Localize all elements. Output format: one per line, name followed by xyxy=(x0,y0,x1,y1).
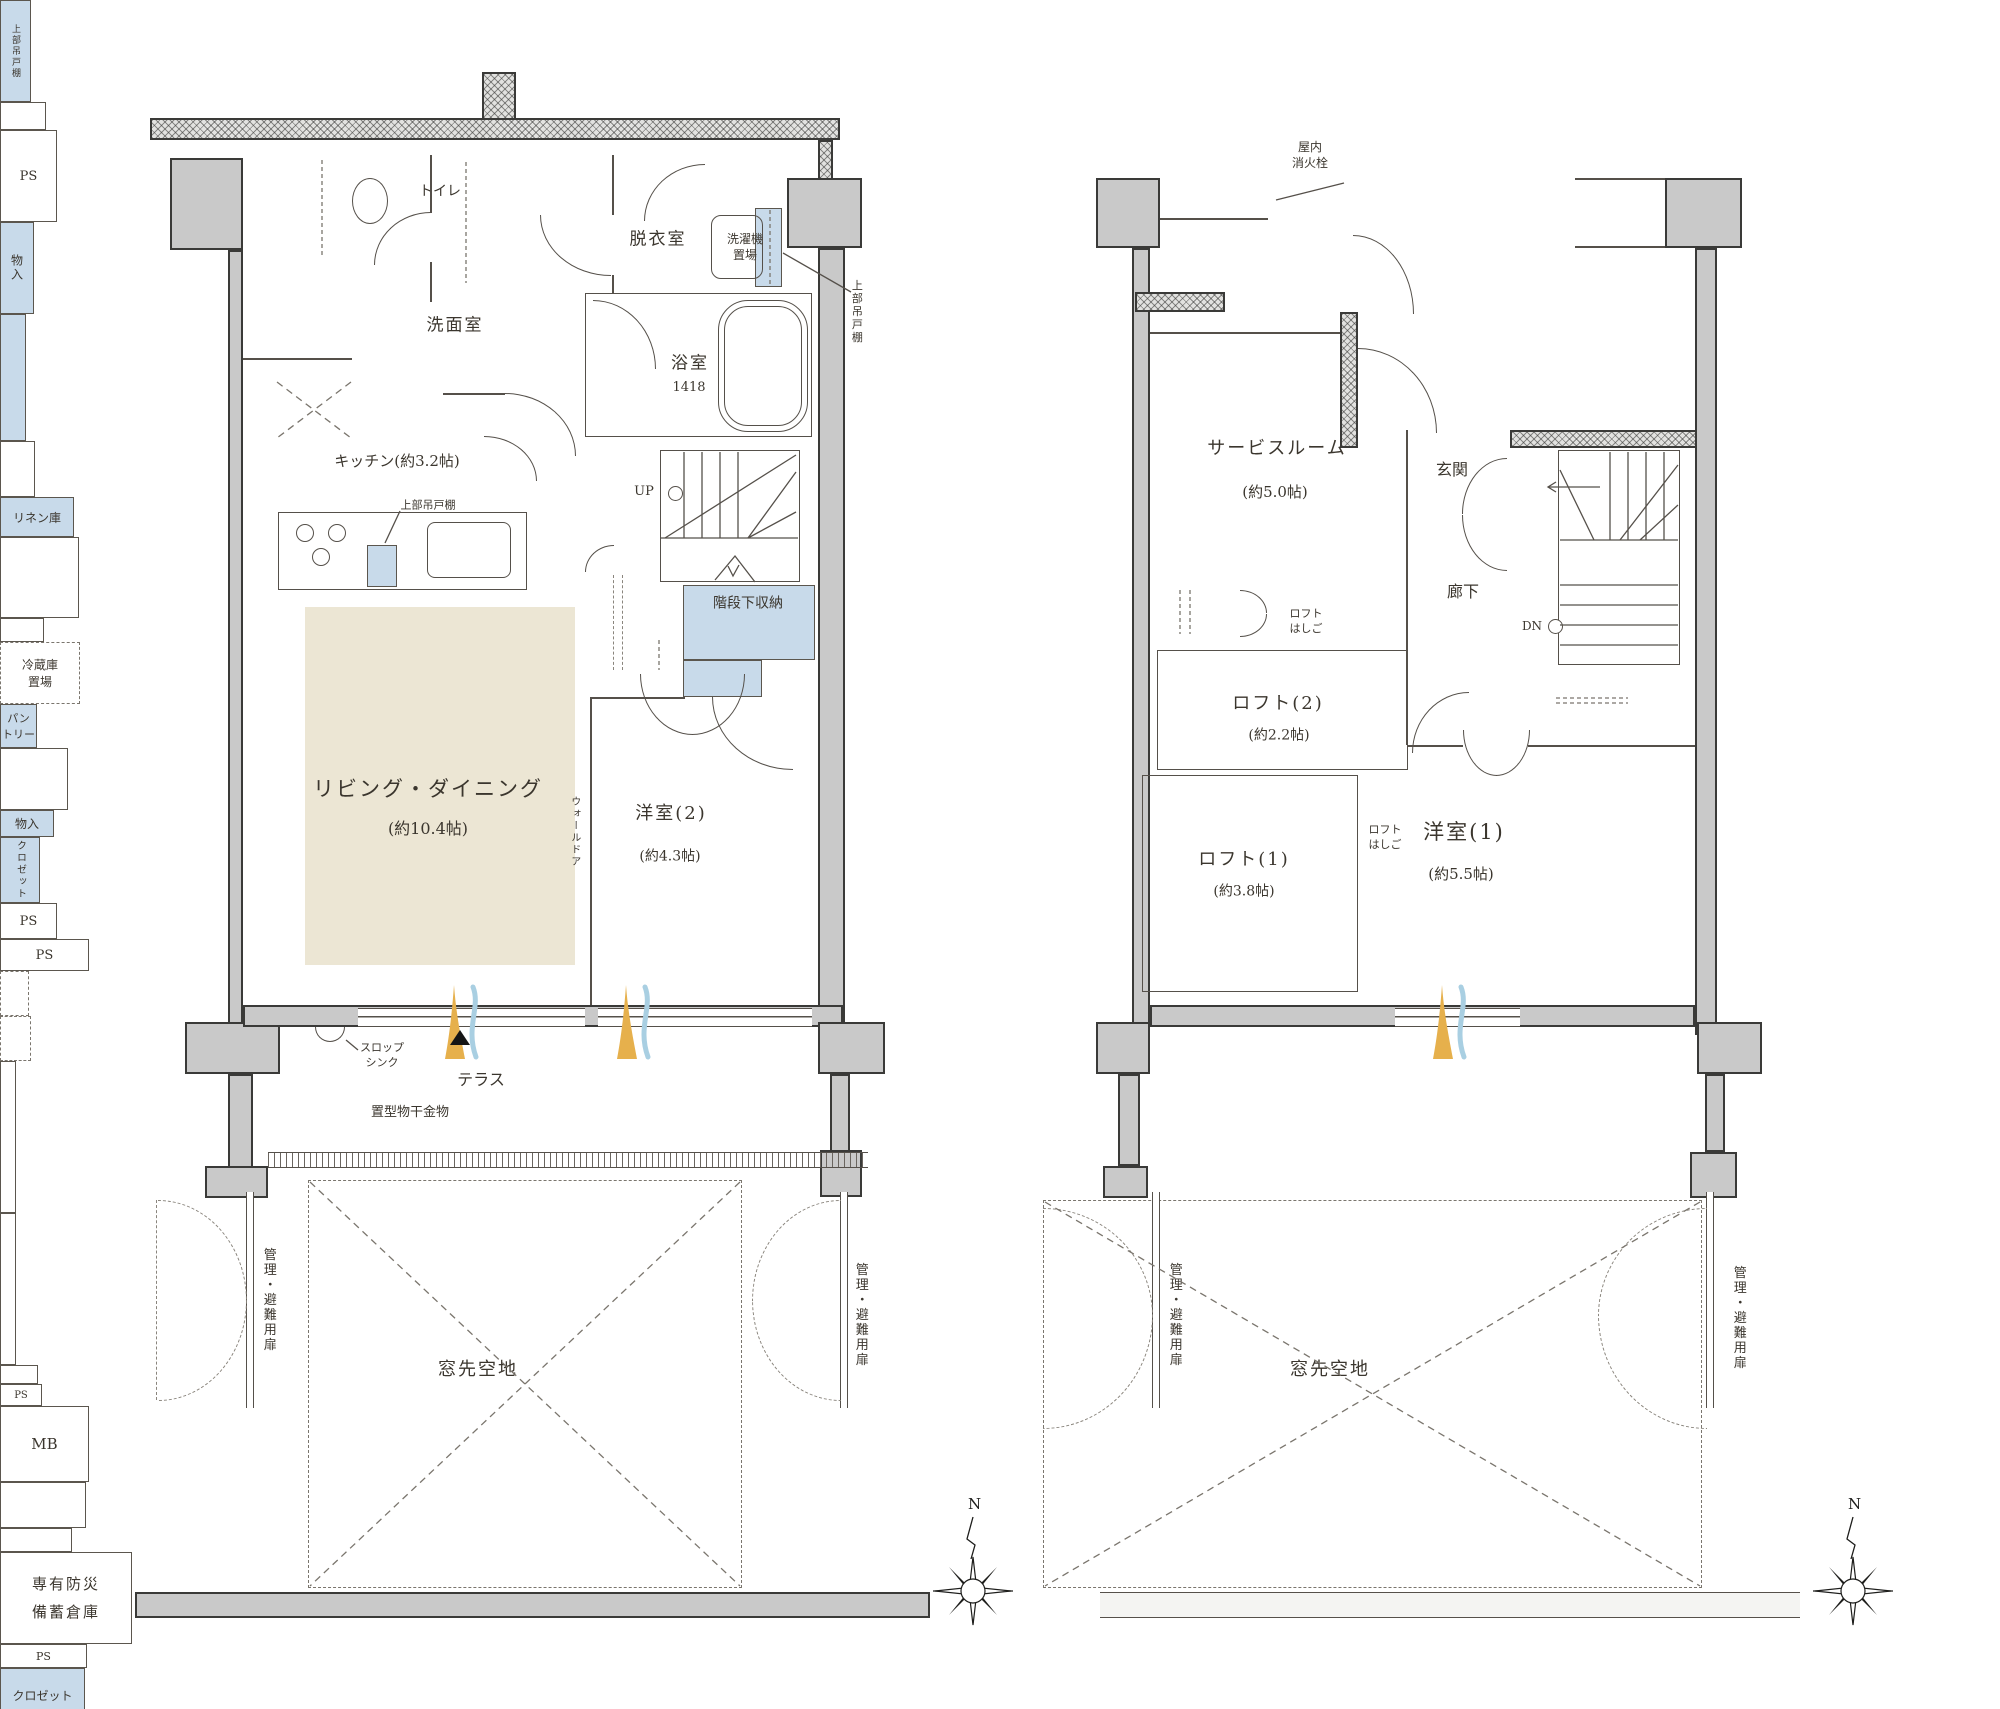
floorplan-canvas: 上部吊戸棚 トイレ PS 物入 洗面室 脱衣室 リネン庫 洗濯機 置場 上部吊戸… xyxy=(0,0,2000,1709)
compass-f2: N xyxy=(1808,1495,1898,1630)
compass-n-f1: N xyxy=(968,1495,981,1513)
linework-overlay xyxy=(0,0,2000,1709)
compass-n-f2: N xyxy=(1848,1495,1861,1513)
compass-f1: N xyxy=(928,1495,1018,1630)
